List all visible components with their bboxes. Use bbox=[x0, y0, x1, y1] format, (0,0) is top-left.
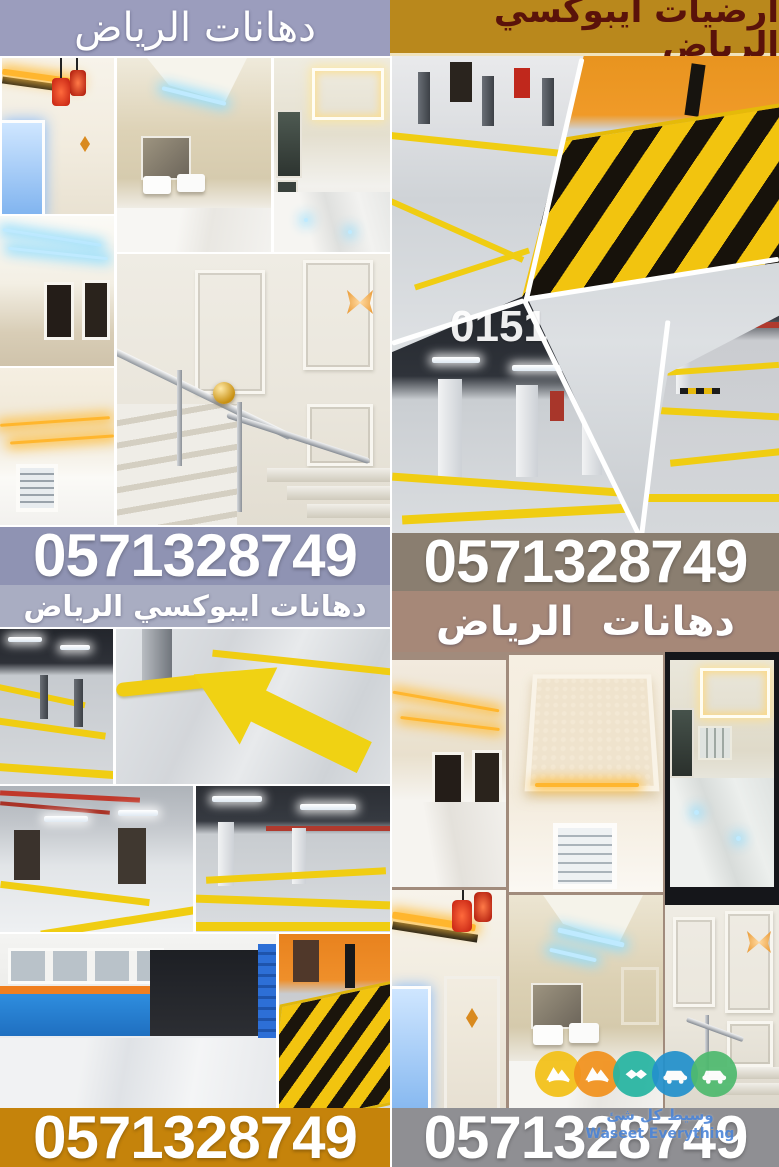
phone-number: 0571328749 bbox=[33, 1108, 357, 1167]
hazard-stripes bbox=[279, 976, 390, 1110]
red-cabinet bbox=[514, 68, 530, 98]
basin bbox=[177, 174, 205, 192]
blue-door bbox=[392, 986, 431, 1108]
caption-band-left: دهانات ايبوكسي الرياض bbox=[0, 585, 390, 627]
photo-red-pendant-entry bbox=[392, 890, 506, 1108]
wall-panel bbox=[673, 917, 715, 1007]
marble-floor bbox=[392, 802, 506, 887]
window bbox=[16, 464, 58, 512]
bottom-right-collage-bg bbox=[392, 652, 779, 1108]
red-stripe bbox=[266, 826, 390, 831]
photo-blue-warehouse bbox=[0, 934, 276, 1110]
ceiling-tray bbox=[525, 674, 660, 791]
flyer-collage: دهانات الرياض ارضيات ايبوكسي الرياض bbox=[0, 0, 779, 1167]
phone-number: 0571328749 bbox=[424, 532, 748, 592]
cove-light bbox=[400, 716, 500, 731]
wall-panel-frame bbox=[621, 967, 659, 1025]
dark-door bbox=[14, 830, 40, 880]
caption-text: دهانات ايبوكسي الرياض bbox=[23, 592, 366, 621]
basin bbox=[569, 1023, 599, 1043]
caption-text: دهانات الرياض bbox=[436, 602, 735, 642]
window bbox=[553, 823, 617, 889]
door-panel bbox=[444, 976, 500, 1108]
photo-majlis-inner bbox=[670, 660, 774, 887]
right-title: ارضيات ايبوكسي الرياض bbox=[390, 0, 779, 62]
light-tube bbox=[44, 816, 88, 822]
wall-panel bbox=[195, 270, 265, 394]
pendant-lamp bbox=[60, 58, 62, 80]
doorway bbox=[432, 752, 464, 806]
phone-band-left: 0571328749 bbox=[0, 527, 390, 585]
parking-line bbox=[392, 196, 524, 262]
basin bbox=[533, 1025, 563, 1045]
ceiling-tray bbox=[312, 68, 384, 120]
ceiling-led bbox=[2, 228, 101, 247]
bay-line bbox=[392, 473, 632, 498]
photo-hazard-ramp bbox=[279, 934, 390, 1110]
lane-outline bbox=[0, 881, 150, 906]
red-pipe bbox=[0, 801, 110, 815]
logo-text-english: Waseet Everything bbox=[560, 1126, 760, 1142]
photo-garage-bays bbox=[0, 629, 113, 784]
ceiling-tray bbox=[700, 668, 770, 718]
dark-doorway bbox=[450, 62, 472, 102]
marble-floor bbox=[117, 208, 271, 252]
doorway bbox=[44, 282, 74, 340]
caption-band-right: دهانات الرياض bbox=[392, 591, 779, 652]
floor-spot bbox=[348, 230, 352, 234]
window-dark bbox=[670, 708, 694, 778]
pendant-shade bbox=[474, 892, 492, 922]
railing-post bbox=[177, 370, 182, 466]
dark-top bbox=[665, 895, 779, 905]
orange-stripe bbox=[0, 986, 160, 994]
gold-finial bbox=[213, 382, 235, 404]
wheel-stopper bbox=[680, 388, 720, 394]
pendant-shade bbox=[52, 78, 70, 106]
photo-red-pendant-room bbox=[2, 58, 114, 214]
doorway bbox=[472, 750, 502, 806]
floor-spot bbox=[736, 836, 741, 841]
photo-led-cove-room bbox=[392, 660, 506, 887]
guard-rail bbox=[196, 895, 390, 910]
blue-roller-door bbox=[258, 944, 276, 1040]
car-icon bbox=[691, 1051, 737, 1097]
car-logo-circle bbox=[691, 1051, 737, 1097]
black-post bbox=[345, 944, 355, 988]
railing-post bbox=[237, 402, 242, 512]
photo-corridor-red-pipes bbox=[0, 786, 193, 932]
pillar bbox=[438, 379, 462, 479]
right-collage-area: 0151 bbox=[392, 56, 779, 533]
cove-light bbox=[393, 691, 500, 713]
marble-floor bbox=[274, 192, 390, 252]
pillar bbox=[418, 72, 430, 124]
floor-reflection bbox=[0, 1038, 276, 1110]
photo-garage-rails bbox=[196, 786, 390, 932]
bay-line bbox=[650, 407, 779, 421]
light-tube bbox=[432, 357, 480, 363]
blue-door bbox=[2, 120, 45, 214]
light-tube bbox=[118, 810, 158, 816]
floor-spot bbox=[694, 810, 699, 815]
red-pipe bbox=[0, 790, 140, 802]
bay-line bbox=[0, 763, 113, 779]
light-tube bbox=[8, 637, 42, 642]
bay-line bbox=[640, 494, 779, 502]
cove-light bbox=[10, 434, 114, 444]
bay-line bbox=[402, 503, 640, 525]
red-door bbox=[550, 391, 564, 421]
cove-light bbox=[535, 783, 639, 787]
phone-band-bottom-left: 0571328749 bbox=[0, 1108, 390, 1167]
marble-floor bbox=[670, 778, 774, 887]
doorway bbox=[82, 280, 110, 340]
stairs bbox=[307, 504, 390, 518]
floor-spot bbox=[304, 218, 308, 222]
ceiling-led bbox=[8, 247, 108, 260]
light-tube bbox=[300, 804, 356, 810]
pendant-shade bbox=[70, 70, 86, 96]
lane-outline bbox=[40, 906, 193, 932]
pillar bbox=[74, 679, 83, 727]
bay-line bbox=[670, 448, 779, 466]
wall-sconce bbox=[80, 136, 90, 152]
pillar bbox=[542, 78, 554, 126]
pillar bbox=[40, 675, 48, 719]
stairs bbox=[287, 486, 390, 500]
photo-majlis-framed bbox=[665, 652, 779, 895]
logo-text-arabic: وسيط كل شئ bbox=[560, 1106, 760, 1124]
light-tube bbox=[60, 645, 90, 650]
photo-yellow-arrow-floor bbox=[116, 629, 390, 784]
title-band-right: ارضيات ايبوكسي الرياض bbox=[390, 0, 779, 56]
pillar bbox=[142, 629, 172, 683]
ceiling-led bbox=[549, 948, 597, 963]
wall-panel bbox=[725, 911, 773, 1013]
left-title: دهانات الرياض bbox=[74, 8, 316, 48]
window-grid bbox=[698, 726, 732, 760]
photo-led-strip-room bbox=[0, 216, 114, 366]
photo-staircase bbox=[117, 254, 390, 525]
photo-majlis-room bbox=[274, 58, 390, 252]
stairs bbox=[267, 468, 390, 482]
cove-light bbox=[0, 416, 110, 427]
pillar bbox=[516, 385, 538, 477]
wall-panel bbox=[303, 260, 373, 370]
logo-watermark bbox=[535, 1051, 779, 1097]
bay-line bbox=[0, 717, 106, 739]
window-dark bbox=[276, 110, 302, 178]
phone-band-right: 0571328749 bbox=[392, 533, 779, 591]
basin bbox=[143, 176, 171, 194]
curb bbox=[196, 922, 390, 931]
photo-textured-ceiling bbox=[509, 655, 663, 892]
parking-line bbox=[414, 248, 530, 291]
dark-door bbox=[118, 828, 146, 884]
pendant-shade bbox=[452, 900, 472, 932]
phone-number: 0571328749 bbox=[33, 526, 357, 586]
black-post bbox=[684, 63, 705, 116]
dark-doorway bbox=[293, 940, 319, 982]
photo-ornate-ceiling-room bbox=[0, 368, 114, 525]
title-band-left: دهانات الرياض bbox=[0, 0, 390, 56]
light-tube bbox=[212, 796, 262, 802]
dark-opening bbox=[150, 950, 258, 1036]
photo-bathroom-sinks bbox=[117, 58, 271, 252]
blue-wall bbox=[0, 992, 150, 1036]
pillar bbox=[482, 76, 494, 126]
window-band bbox=[8, 948, 164, 984]
